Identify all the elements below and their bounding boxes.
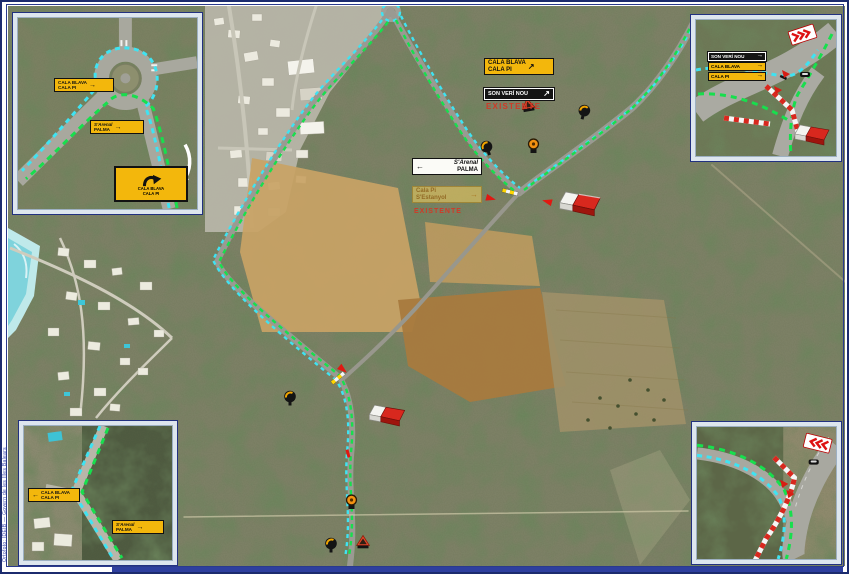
sign-line: CALA PI <box>58 85 87 90</box>
arrow-right-icon: → <box>757 53 764 60</box>
sign-line: PALMA <box>94 127 112 132</box>
sign-line: S'Estanyol <box>416 195 468 202</box>
sign-line: PALMA <box>116 527 134 532</box>
inset-sign-arenal: S'Arenal PALMA → <box>112 520 164 534</box>
sign-arenal-palma: ← S'Arenal PALMA <box>412 158 482 175</box>
sign-son-veri-nou: SON VERÍ NOU ↗ <box>484 88 554 100</box>
sign-line: CALA BLAVA <box>711 64 755 69</box>
sign-line: PALMA <box>457 167 478 174</box>
inset-roundabout-detail: CALA BLAVA CALA PI → S'Arenal PALMA → CA <box>12 12 203 215</box>
inset-junction-west-detail: ← CALA BLAVA CALA PI S'Arenal PALMA → <box>18 420 178 566</box>
sign-lines: S'Arenal PALMA <box>426 160 478 173</box>
roundabout-return-arrow-icon <box>139 172 163 187</box>
arrow-left-icon: ← <box>416 163 424 171</box>
arrow-right-icon: → <box>89 82 96 89</box>
inset-sign-cala-blava: ← CALA BLAVA CALA PI <box>28 488 80 502</box>
sign-line: CALA PI <box>488 67 526 74</box>
inset-map <box>696 426 837 560</box>
inset-sign-son-veri: SON VERÍ NOU → <box>708 52 766 61</box>
arrow-up-right-icon: ↗ <box>528 63 535 71</box>
sign-line: SON VERÍ NOU <box>488 91 541 97</box>
note-existente: EXISTENTE <box>414 208 462 215</box>
arrow-right-icon: → <box>757 73 764 80</box>
arrow-right-icon: → <box>470 191 478 199</box>
inset-sign-cala-blava: CALA BLAVA → <box>708 62 766 71</box>
inset-sign-arenal: S'Arenal PALMA → <box>90 120 144 134</box>
sign-lines: S'Arenal PALMA <box>94 122 112 132</box>
sign-lines: CALA BLAVA CALA PI <box>58 80 87 90</box>
arrow-right-icon: → <box>757 63 764 70</box>
inset-junction-south-detail <box>691 421 842 565</box>
sign-cala-pi-faded: Cala Pi S'Estanyol → <box>412 186 482 203</box>
inset-map: SON VERÍ NOU → CALA BLAVA → CALA PI → <box>695 19 837 157</box>
arrow-up-right-icon: ↗ <box>543 90 550 98</box>
sign-cala-blava-cala-pi: CALA BLAVA CALA PI ↗ <box>484 58 554 75</box>
sign-lines: CALA BLAVA CALA PI <box>138 187 164 196</box>
sign-line: CALA BLAVA <box>488 60 526 67</box>
inset-sign-cala-pi: CALA PI → <box>708 72 766 81</box>
inset-junction-north-detail: SON VERÍ NOU → CALA BLAVA → CALA PI → <box>690 14 842 162</box>
sign-lines: Cala Pi S'Estanyol <box>416 188 468 201</box>
sign-lines: CALA BLAVA CALA PI <box>41 490 70 500</box>
inset-sign-cala-blava: CALA BLAVA CALA PI → <box>54 78 114 92</box>
sign-line: S'Arenal <box>454 160 478 167</box>
sign-lines: S'Arenal PALMA <box>116 522 134 532</box>
sign-lines: CALA BLAVA CALA PI <box>488 60 526 73</box>
sign-line: Cala Pi <box>416 188 468 195</box>
inset-sign-stack: SON VERÍ NOU → CALA BLAVA → CALA PI → <box>708 52 766 81</box>
sign-line: CALA PI <box>138 192 164 197</box>
arrow-left-icon: ← <box>32 492 39 499</box>
sign-line: CALA PI <box>41 495 70 500</box>
map-credit: Ortofoto: IDEIB — Govern de les Illes Ba… <box>2 447 8 562</box>
arrow-right-icon: → <box>136 524 143 531</box>
inset-map: CALA BLAVA CALA PI → S'Arenal PALMA → CA <box>17 17 198 210</box>
sign-line: CALA PI <box>711 74 755 79</box>
bottom-frame-band <box>112 567 843 572</box>
traffic-diversion-plan: CALA BLAVA CALA PI ↗ SON VERÍ NOU ↗ EXIS… <box>0 0 849 574</box>
inset-junction-north-svg <box>696 20 836 156</box>
inset-map: ← CALA BLAVA CALA PI S'Arenal PALMA → <box>23 425 173 561</box>
inset-junction-south-svg <box>697 427 836 559</box>
sign-line: SON VERÍ NOU <box>711 54 755 59</box>
note-existente: EXISTENTE <box>486 102 541 111</box>
inset-sign-roundabout-return: CALA BLAVA CALA PI <box>114 166 188 202</box>
arrow-right-icon: → <box>114 124 121 131</box>
